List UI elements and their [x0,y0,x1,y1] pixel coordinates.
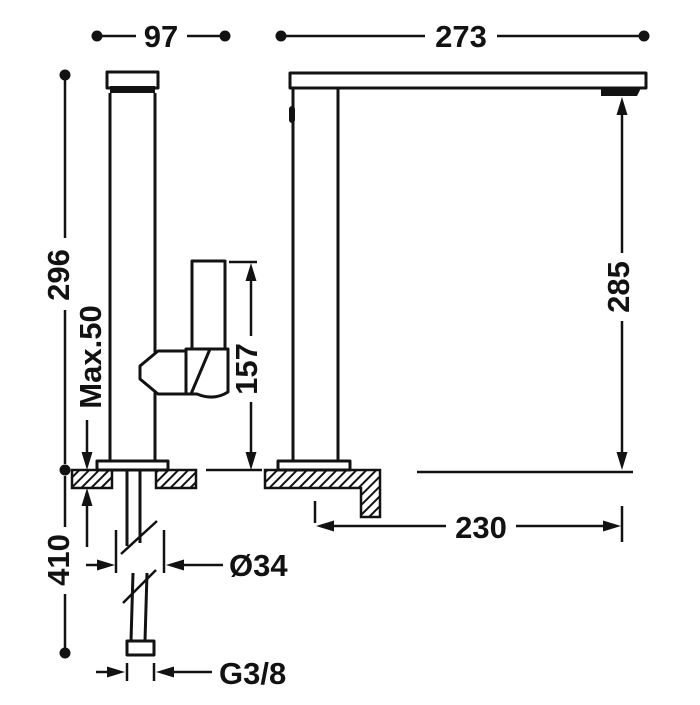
dim-label-shank-diameter: Ø34 [229,548,288,583]
dim-dot [220,31,231,42]
dim-label-body-height: 296 [41,249,76,301]
dim-dot [639,31,650,42]
dim-dot [60,648,71,659]
spout-outlet-aerator [601,88,641,96]
dim-dot [276,31,287,42]
base-plate-side [278,461,350,470]
faucet-dimension-drawing: 97 273 [0,0,700,700]
base-plate-front [97,461,168,470]
dim-label-spout-height: 285 [601,261,636,313]
spout-end-shadow [110,86,155,93]
handle-lever [192,261,225,350]
dim-dot [92,31,103,42]
technical-drawing-page: 97 273 [0,0,700,700]
dim-label-front-width: 97 [144,19,178,54]
flex-hose-edge [131,573,133,641]
spout-arm [290,73,646,88]
dim-label-connection-thread: G3/8 [219,656,286,691]
dim-label-spout-reach: 230 [455,510,507,545]
dim-label-handle-height: 157 [229,343,264,395]
counter-hatch-left [72,470,112,488]
counter-hatch-mid [156,470,196,488]
spout-end-cap [107,72,158,88]
flex-hose-edge [145,573,147,641]
handle-edge-detail [289,106,295,123]
hose-connector [127,641,154,655]
dim-dot [60,70,71,81]
dim-label-hose-length: 410 [41,534,76,586]
dim-dot [60,465,71,476]
dim-label-overall-depth: 273 [435,19,487,54]
dim-label-max-deck: Max.50 [73,305,108,408]
